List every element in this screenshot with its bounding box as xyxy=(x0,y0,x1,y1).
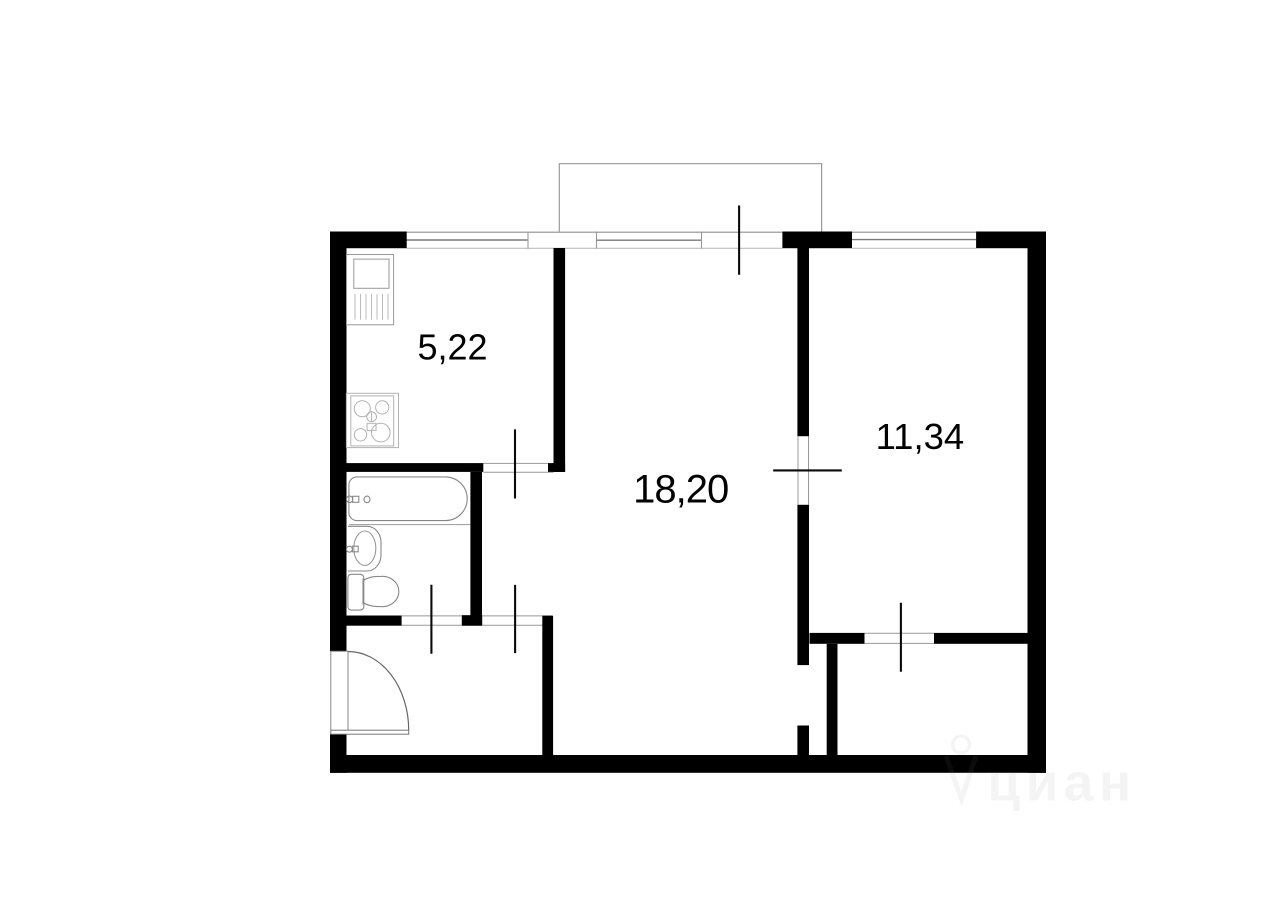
svg-text:циан: циан xyxy=(988,754,1137,813)
svg-text:5,22: 5,22 xyxy=(417,327,487,368)
svg-text:11,34: 11,34 xyxy=(876,416,965,457)
svg-text:18,20: 18,20 xyxy=(633,467,728,511)
